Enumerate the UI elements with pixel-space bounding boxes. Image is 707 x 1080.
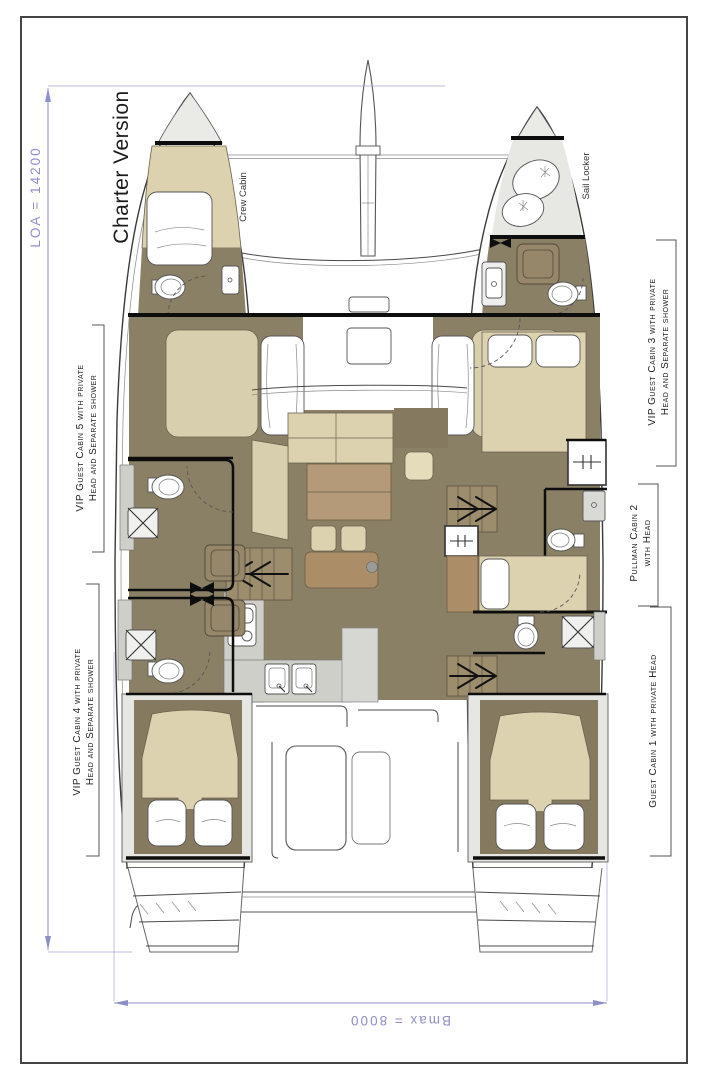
sink-icon [482,262,506,306]
cabin5-berth-top [166,330,258,437]
cushion [341,526,366,551]
cabin5-label-line1: VIP Guest Cabin 5 with private [75,364,86,511]
stool [405,452,433,480]
cabin1-aft [468,694,608,862]
saloon-bench [252,440,288,540]
cabin5-label-line2: Head and Separate shower [88,375,99,502]
sideboard [394,408,448,448]
catamaran-deck-plan: Charter Version Crew Cabin Sail Locker V… [0,0,707,1080]
cabin4-label-line1: VIP Guest Cabin 4 with private [72,648,83,795]
stbd-stairs-aft [447,656,497,696]
stbd-stairs-fwd [447,486,497,532]
cushion [311,526,336,551]
sail-locker-label: Sail Locker [581,153,592,200]
dresser [447,556,478,612]
floorplan-page: Charter Version Crew Cabin Sail Locker V… [0,0,707,1080]
hanging-locker-icon [445,526,478,556]
page-title: Charter Version [110,90,133,243]
shower-icon [126,630,156,660]
entry-step [342,628,378,702]
toilet-icon [514,616,538,649]
cockpit-table [286,746,346,850]
loa-dimension-label: LOA = 14200 [28,146,43,247]
pillow [488,335,532,367]
pillow [194,800,232,846]
cabin4-label-line2: Head and Separate shower [85,659,96,786]
cabin1-bed [490,712,590,814]
deck-locker [349,297,389,312]
hanging-locker-icon [568,440,606,485]
cabin4-bed [142,710,238,812]
sink-icon [583,491,605,521]
beam-fitting [356,146,380,155]
pillow [496,804,536,850]
pillow [544,804,584,850]
sink-icon [222,266,239,294]
cabin3-label-line1: VIP Guest Cabin 3 with private [647,278,658,425]
cabin3-label-line2: Head and Separate shower [660,289,671,416]
deck-hatch [347,328,391,364]
pillow [536,335,580,367]
pillow [481,559,509,609]
cockpit-bench [352,752,390,844]
crew-cabin-label: Crew Cabin [238,172,249,222]
cabin1-label: Guest Cabin 1 with private Head [648,654,659,807]
cabin2-label-line1: Pullman Cabin 2 [629,504,640,581]
shower-icon [562,616,594,648]
shower-icon [128,508,158,538]
stbd-transom-steps [473,868,602,952]
bmax-dimension-label: Bmax = 8000 [349,1013,451,1028]
pillow [148,800,186,846]
cabin2-label-line2: with Head [642,520,653,567]
